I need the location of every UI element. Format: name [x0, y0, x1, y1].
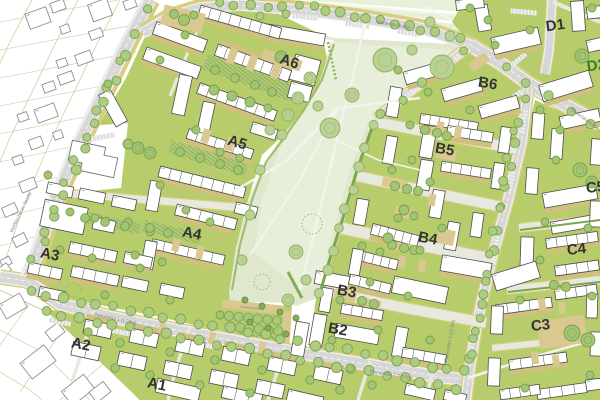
svg-text:D1: D1	[545, 16, 566, 36]
svg-text:A1: A1	[146, 374, 168, 394]
svg-text:C4: C4	[566, 240, 588, 259]
svg-text:B2: B2	[327, 320, 349, 340]
svg-text:B4: B4	[417, 229, 439, 249]
svg-text:B6: B6	[477, 74, 499, 94]
svg-text:D2: D2	[586, 56, 600, 76]
svg-text:B5: B5	[434, 140, 456, 160]
svg-text:A2: A2	[70, 334, 92, 354]
svg-text:A3: A3	[39, 244, 61, 264]
svg-text:C5: C5	[585, 178, 600, 197]
svg-text:B3: B3	[336, 282, 358, 302]
svg-text:C3: C3	[530, 316, 551, 335]
